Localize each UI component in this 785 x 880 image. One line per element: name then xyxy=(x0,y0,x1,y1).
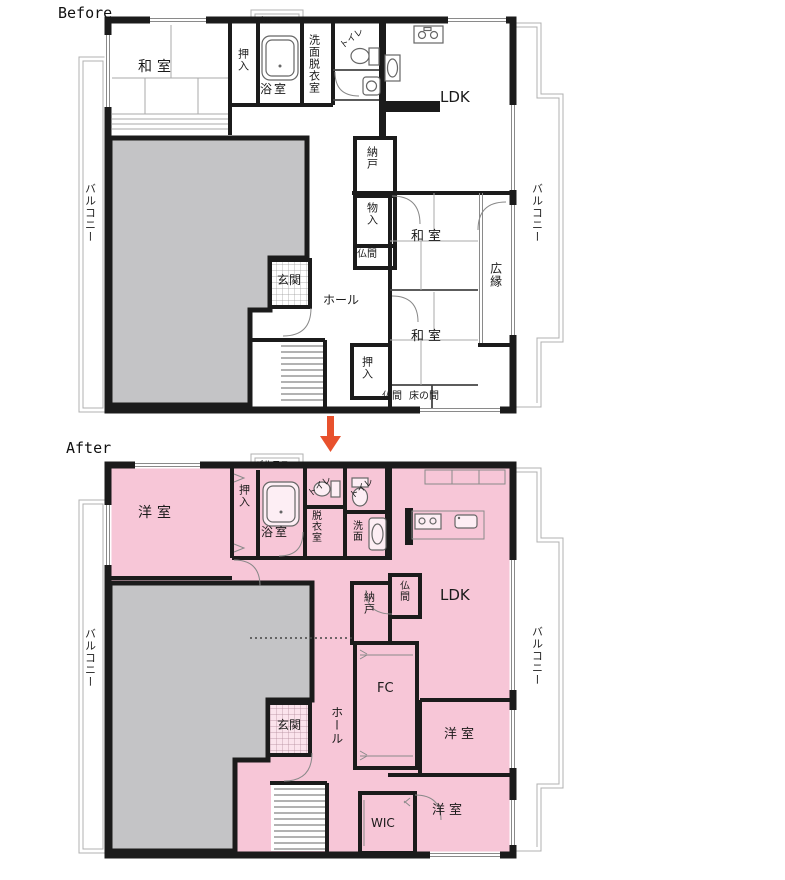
before-title: Before xyxy=(58,6,112,22)
before-hiroen-label: 広縁 xyxy=(489,262,502,288)
after-oshiire-label: 押入 xyxy=(238,484,250,508)
floorplan-page: Before After バルコニー バルコニー バルコニー 和室 押入 浴室 … xyxy=(0,0,785,880)
after-bath-label: 浴室 xyxy=(261,526,289,539)
after-datsuiishitsu-label: 脱衣室 xyxy=(309,510,320,543)
after-yoshitsu3-label: 洋室 xyxy=(432,804,466,818)
after-yoshitsu1-label: 洋室 xyxy=(138,506,176,521)
before-oshiire1-label: 押入 xyxy=(237,48,249,72)
before-butsuma2-label: 仏間 xyxy=(382,392,402,403)
before-oshiire2-label: 押入 xyxy=(361,356,373,380)
after-wic-label: WIC xyxy=(371,817,395,830)
before-senmen-label: 洗面脱衣室 xyxy=(308,34,320,94)
after-genkan-label: 玄関 xyxy=(277,719,301,732)
after-washbasin-icon xyxy=(369,518,386,550)
after-fc-label: FC xyxy=(377,682,394,696)
after-balcony-left-label: バルコニー xyxy=(84,628,96,688)
before-balcony-top-label: バルコニー xyxy=(255,17,297,26)
after-senmen-label: 洗面 xyxy=(350,520,361,542)
after-nando-label: 納戸 xyxy=(363,591,375,615)
before-balcony-right-label: バルコニー xyxy=(531,183,543,243)
floorplan-drawing xyxy=(0,0,785,880)
before-after-arrow-icon xyxy=(320,416,341,452)
after-yoshitsu2-label: 洋室 xyxy=(444,728,478,742)
after-ldk-label: LDK xyxy=(440,588,470,604)
before-tokonoma-label: 床の間 xyxy=(409,392,439,403)
before-toilet-icon xyxy=(351,48,379,65)
before-balcony-left-label: バルコニー xyxy=(84,183,96,243)
before-monoire-label: 物入 xyxy=(366,202,378,226)
before-bath-label: 浴室 xyxy=(260,83,288,96)
before-washitsu1-label: 和室 xyxy=(138,60,176,75)
before-washbasin-icon xyxy=(363,77,380,95)
before-nando-label: 納戸 xyxy=(366,146,378,170)
after-balcony-top-label: バルコニー xyxy=(255,461,297,470)
before-ldk-label: LDK xyxy=(440,90,470,106)
before-washitsu3-label: 和室 xyxy=(411,330,445,344)
after-balcony-right-label: バルコニー xyxy=(531,626,543,686)
before-stove-icon xyxy=(414,26,443,43)
before-hall-label: ホール xyxy=(323,294,359,307)
before-butsuma1-label: 仏間 xyxy=(357,250,377,261)
before-genkan-label: 玄関 xyxy=(277,274,301,287)
after-hall-label: ホール xyxy=(330,706,343,745)
after-butsuma-label: 仏間 xyxy=(397,580,408,602)
after-title: After xyxy=(66,441,111,457)
after-bathtub-icon xyxy=(263,482,299,526)
before-bathtub-icon xyxy=(262,36,298,80)
before-washitsu2-label: 和室 xyxy=(411,230,445,244)
before-kitchen-sink-icon xyxy=(385,55,400,81)
